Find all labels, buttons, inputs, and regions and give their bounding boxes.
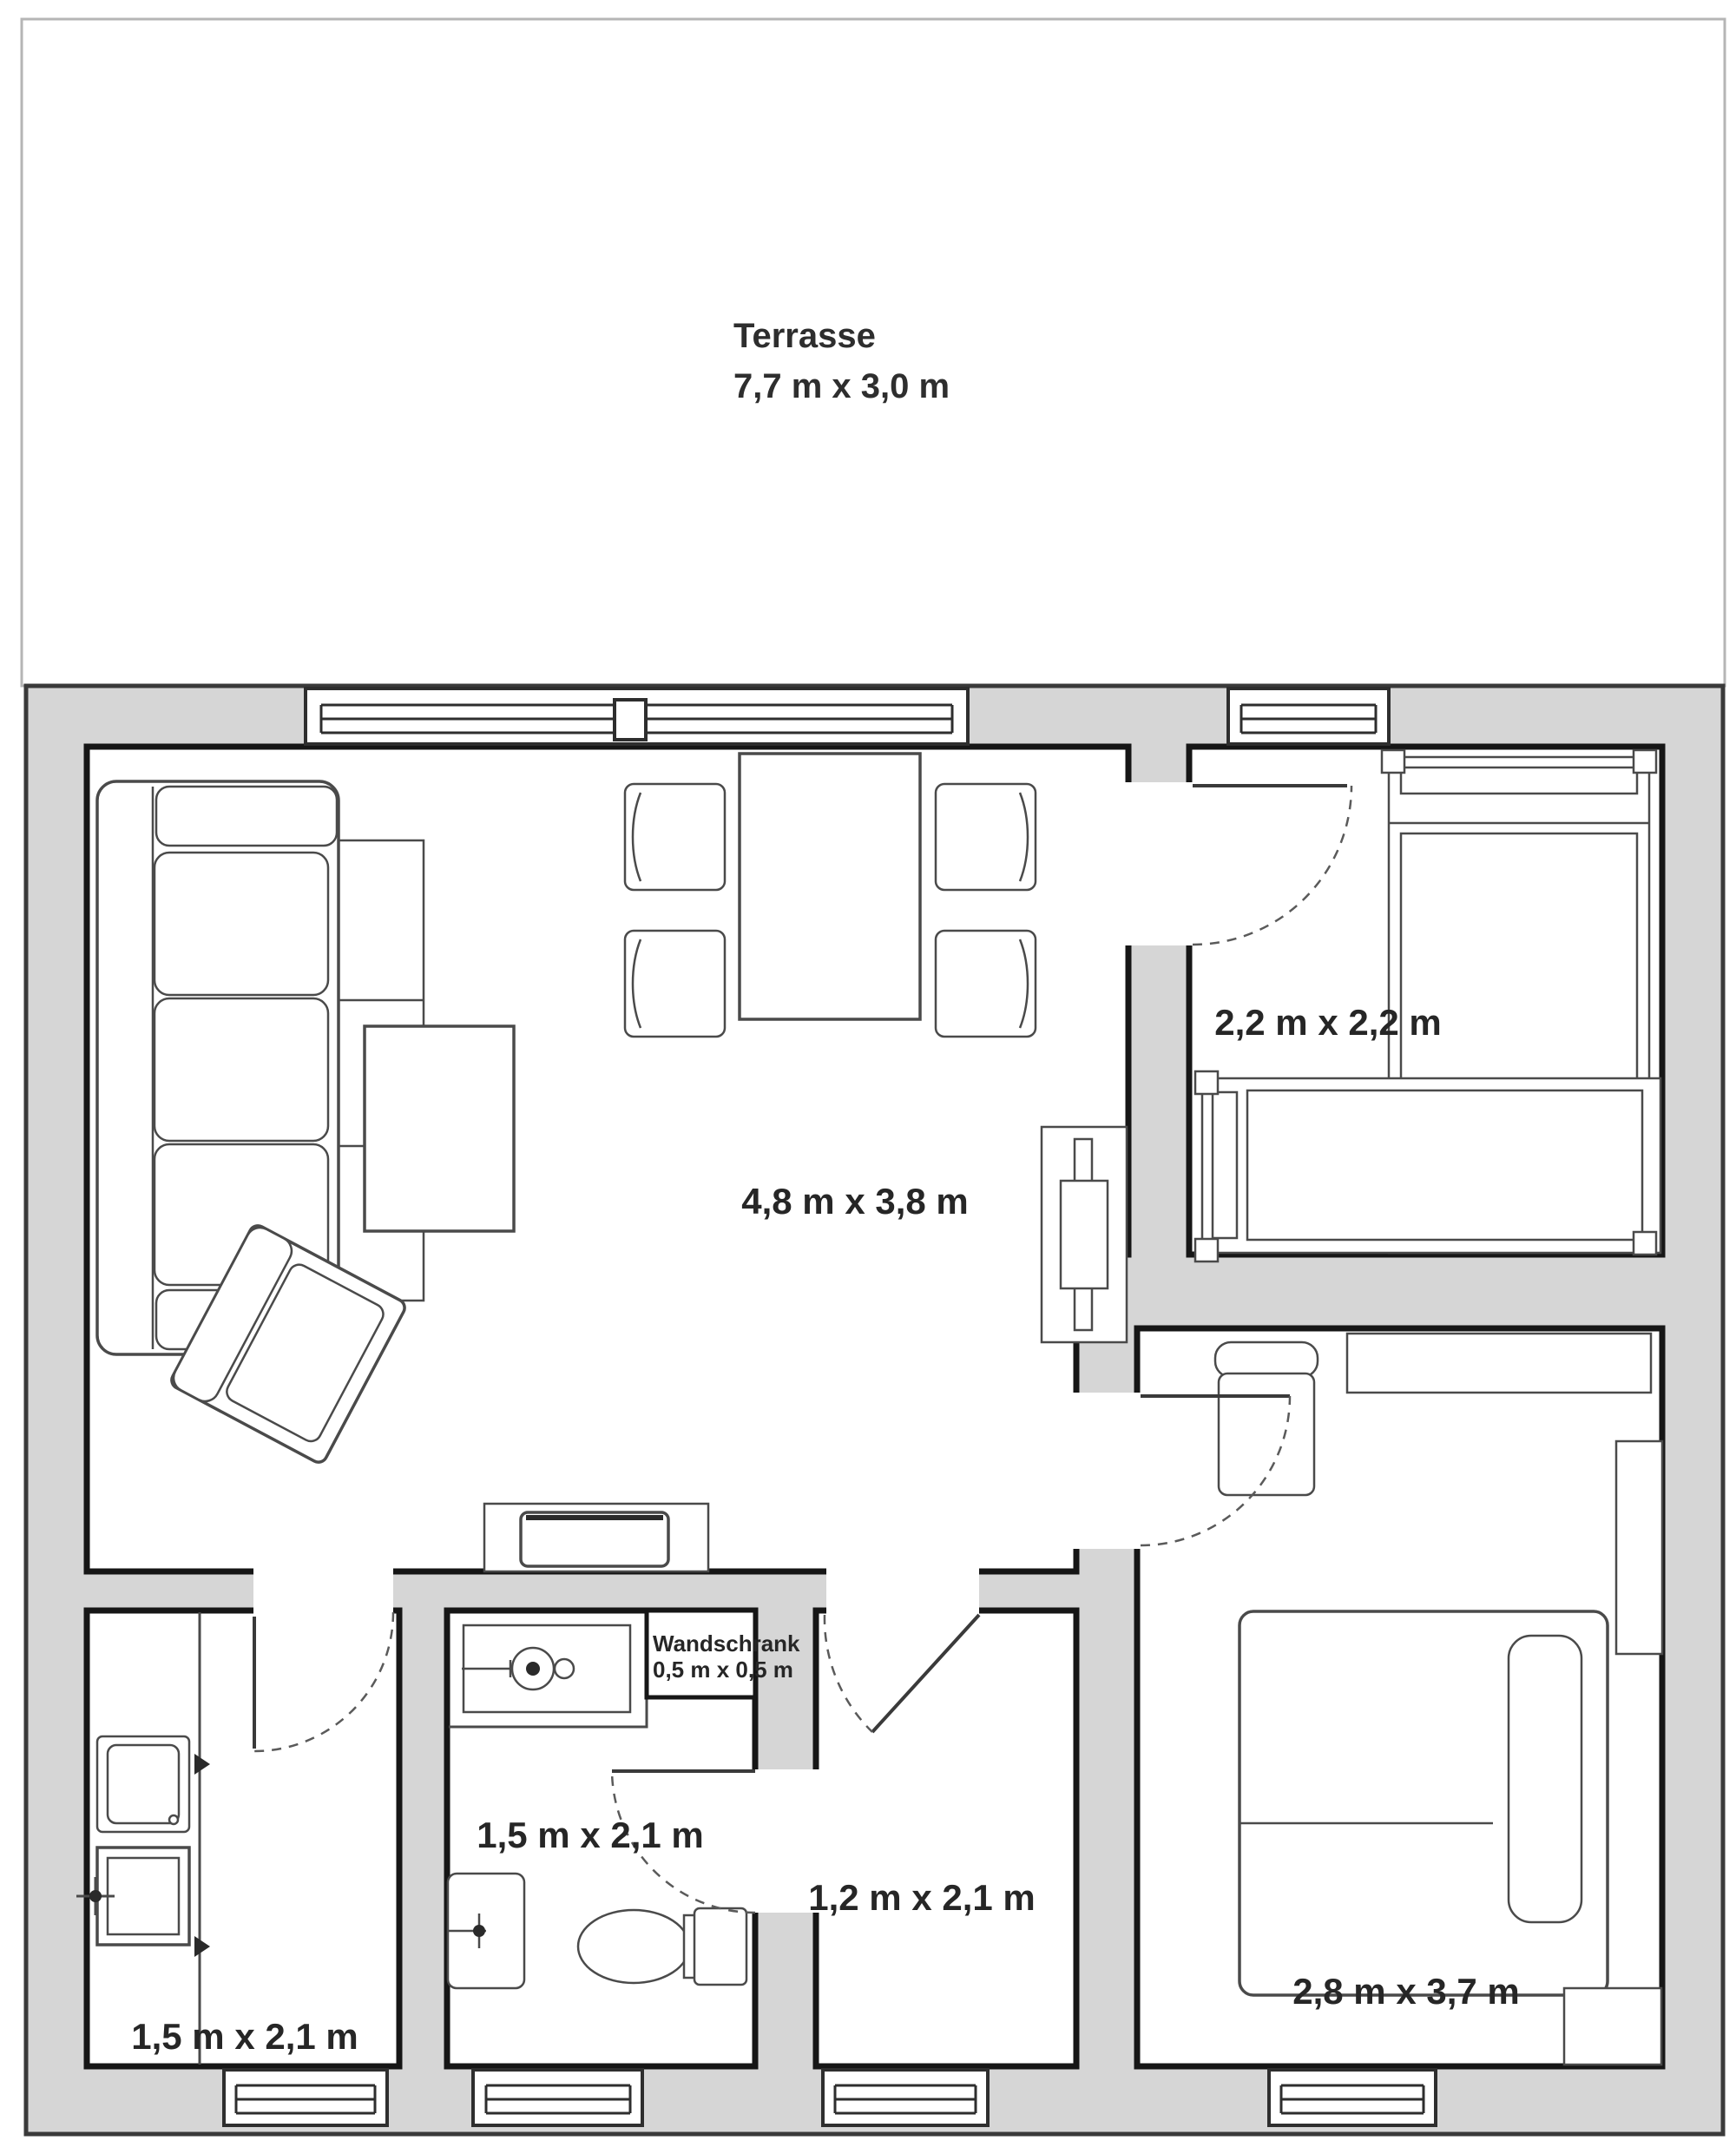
small-room-dimensions: 2,2 m x 2,2 m — [1214, 1002, 1442, 1043]
floor-plan: Terrasse 7,7 m x 3,0 m — [0, 0, 1736, 2154]
bedroom-dimensions: 2,8 m x 3,7 m — [1292, 1971, 1520, 2012]
toilet — [578, 1908, 746, 1985]
terrace-label: Terrasse — [733, 317, 876, 355]
bathroom-dimensions: 1,5 m x 2,1 m — [477, 1815, 704, 1855]
desk-chair — [1215, 1342, 1318, 1495]
hallway-opening-gap — [826, 1564, 979, 1618]
coffee-table — [365, 1026, 514, 1231]
tv — [521, 1512, 668, 1566]
small-room-door-gap — [1124, 782, 1193, 945]
bathroom-sink — [448, 1874, 524, 1988]
bedroom-door-gap — [1072, 1393, 1141, 1549]
closet-label: Wandschrank — [653, 1630, 800, 1657]
dining-table — [740, 754, 920, 1019]
bathroom-window — [473, 2070, 642, 2125]
bedroom-window — [1269, 2070, 1436, 2125]
terrace-dimensions: 7,7 m x 3,0 m — [733, 367, 950, 405]
terrace-window — [306, 688, 968, 744]
closet-dimensions: 0,5 m x 0,5 m — [653, 1657, 793, 1683]
bed-horizontal — [1195, 1071, 1660, 1261]
floor-plan-svg: Terrasse 7,7 m x 3,0 m — [0, 0, 1736, 2154]
hallway-floor — [816, 1611, 1076, 2066]
bedside-cabinet — [1564, 1988, 1661, 2065]
kitchen-door-gap — [253, 1564, 393, 1618]
kitchen-dimensions: 1,5 m x 2,1 m — [131, 2016, 358, 2057]
hallway-window — [823, 2070, 988, 2125]
terrace: Terrasse 7,7 m x 3,0 m — [22, 19, 1725, 686]
hallway-dimensions: 1,2 m x 2,1 m — [808, 1877, 1036, 1918]
kitchen-sink — [97, 1736, 189, 1832]
double-bed — [1240, 1611, 1608, 1995]
dining-chair — [936, 931, 1036, 1037]
dining-chair — [625, 931, 725, 1037]
kitchen-window — [224, 2070, 387, 2125]
radiator — [1042, 1127, 1127, 1342]
dining-chair — [625, 784, 725, 890]
pillow — [1509, 1636, 1581, 1922]
kitchen-floor — [87, 1611, 399, 2066]
tv-sideboard — [484, 1504, 708, 1571]
shower — [449, 1612, 647, 1727]
dining-chair — [936, 784, 1036, 890]
desk — [1347, 1334, 1651, 1393]
living-room-dimensions: 4,8 m x 3,8 m — [741, 1181, 969, 1222]
wardrobe — [1616, 1441, 1662, 1654]
small-room-window — [1228, 688, 1389, 744]
